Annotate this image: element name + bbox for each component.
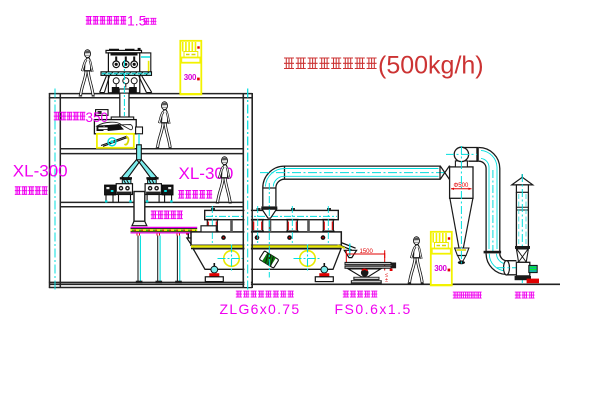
svg-text:1.5: 1.5 [127,13,147,29]
svg-text:ZLG6x0.75: ZLG6x0.75 [220,301,301,317]
svg-text:1500: 1500 [360,249,374,255]
svg-text:FS0.6x1.5: FS0.6x1.5 [335,301,412,317]
svg-text:(500kg/h): (500kg/h) [378,52,484,80]
svg-text:XL-300: XL-300 [13,162,68,181]
svg-text:350: 350 [86,110,109,125]
svg-text:±: ± [385,277,388,283]
